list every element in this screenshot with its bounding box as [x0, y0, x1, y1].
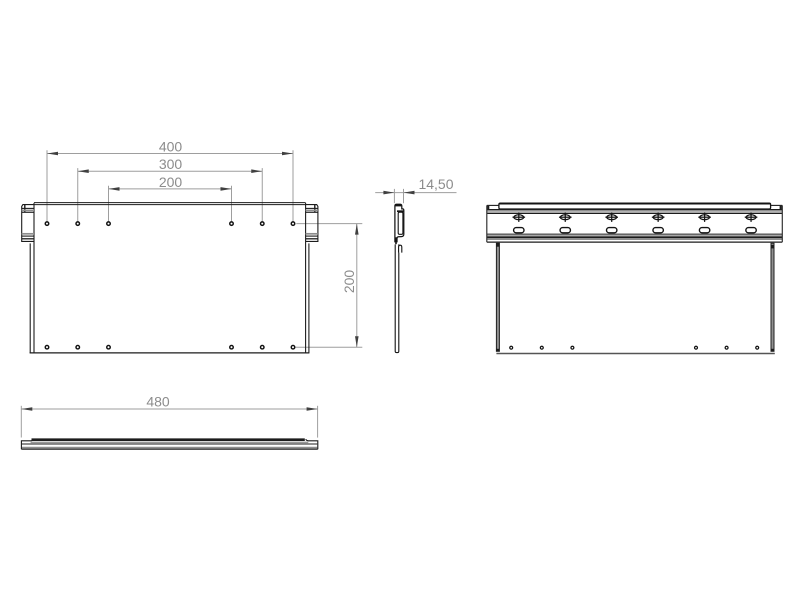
svg-text:400: 400: [159, 138, 183, 154]
svg-text:14,50: 14,50: [418, 176, 453, 192]
svg-text:200: 200: [341, 270, 357, 294]
svg-text:300: 300: [159, 156, 183, 172]
svg-text:480: 480: [146, 394, 170, 410]
svg-text:200: 200: [159, 174, 183, 190]
